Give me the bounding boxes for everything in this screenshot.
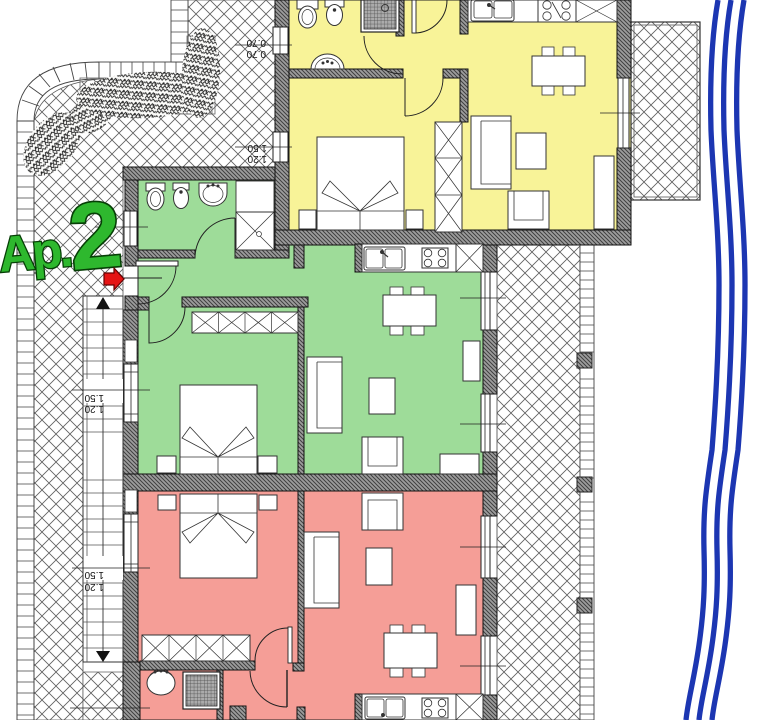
svg-text:1.50: 1.50 xyxy=(84,569,104,580)
svg-text:Ap.: Ap. xyxy=(0,221,72,283)
svg-text:0.70: 0.70 xyxy=(246,37,266,48)
svg-text:1.50: 1.50 xyxy=(247,142,267,153)
svg-text:0.70: 0.70 xyxy=(246,48,266,59)
svg-text:1.20: 1.20 xyxy=(84,403,104,414)
svg-text:1.20: 1.20 xyxy=(84,581,104,592)
svg-text:1.50: 1.50 xyxy=(84,392,104,403)
svg-text:1.20: 1.20 xyxy=(247,153,267,164)
